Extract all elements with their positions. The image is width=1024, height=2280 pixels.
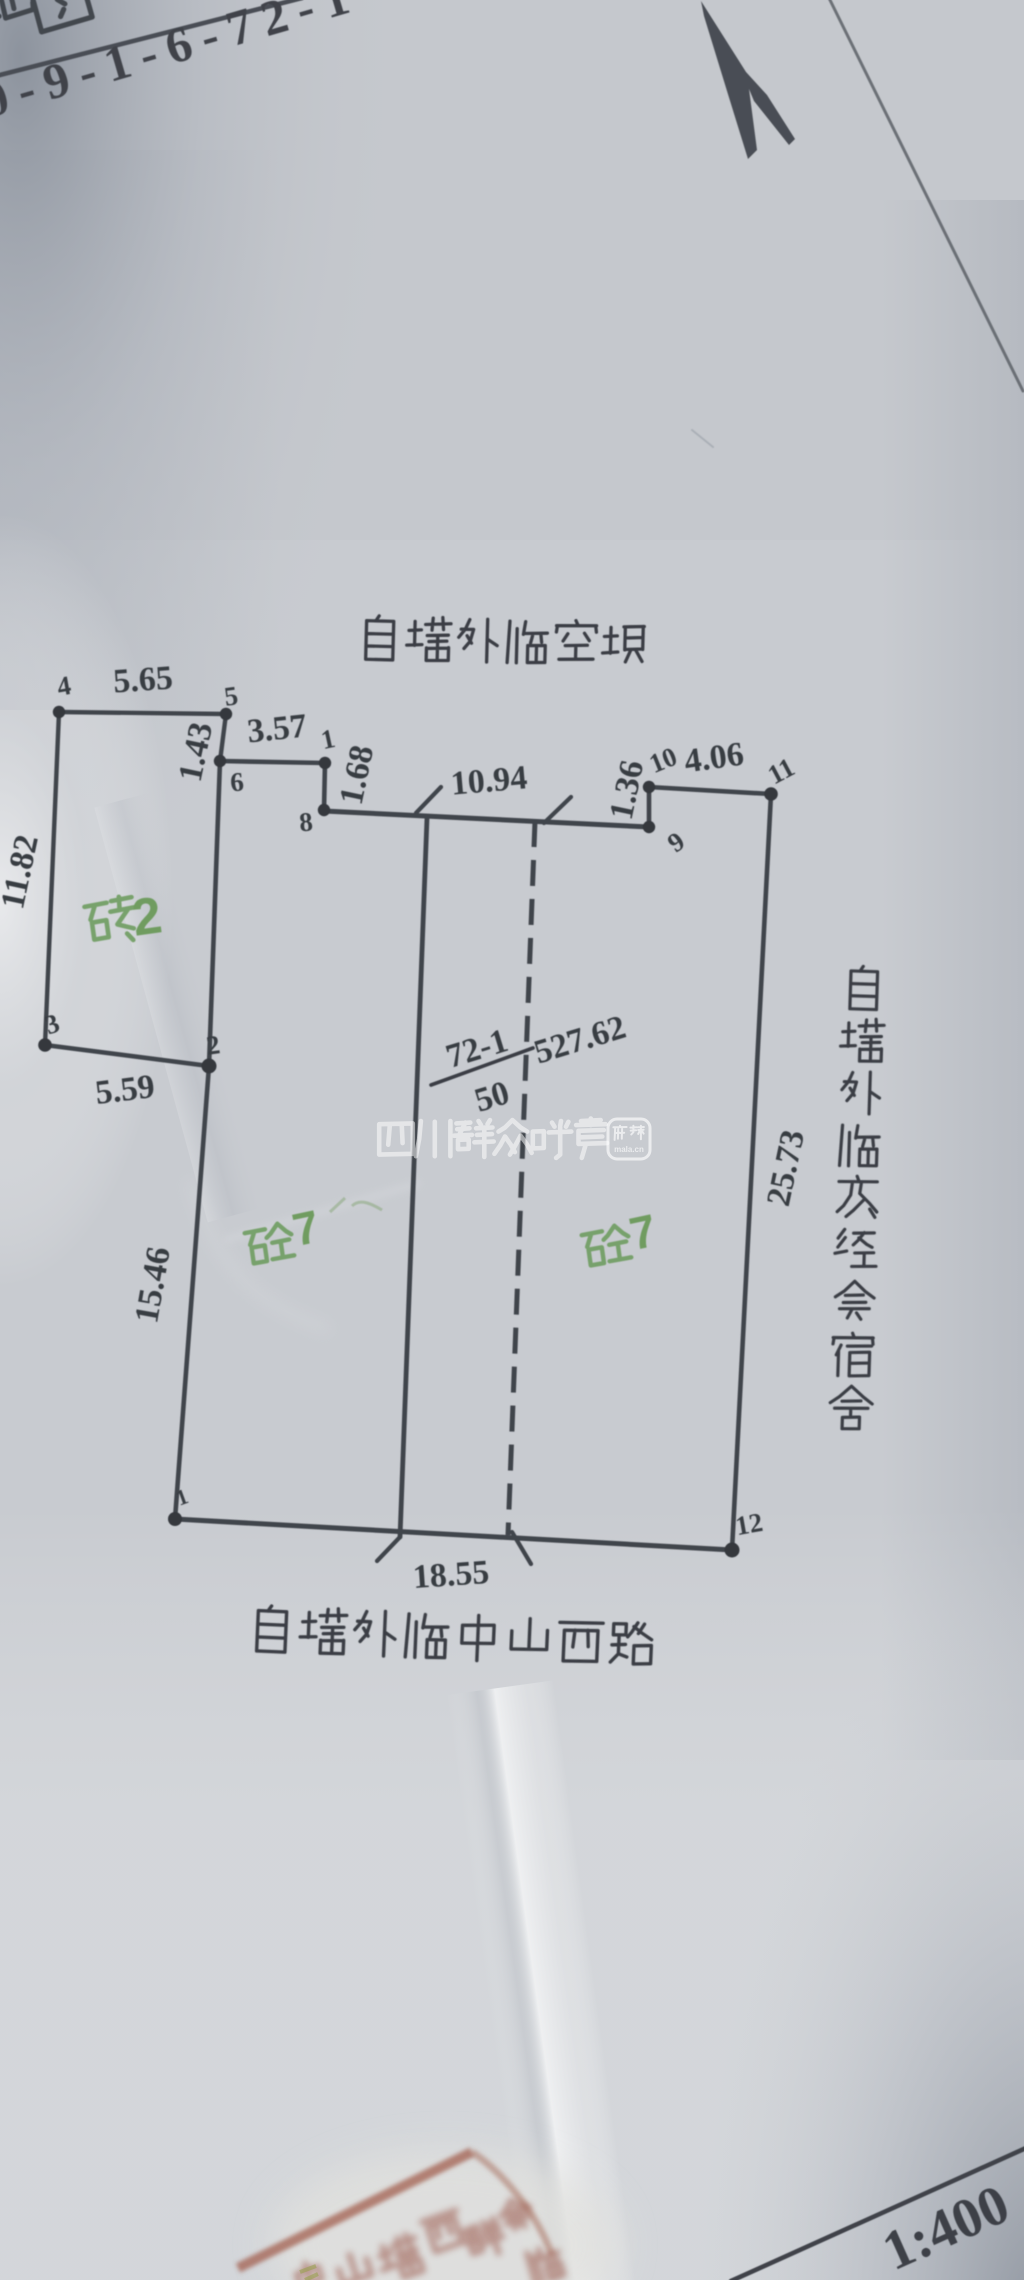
svg-text:mala.cn: mala.cn	[614, 1145, 644, 1154]
svg-text:6: 6	[229, 766, 245, 797]
svg-text:5.65: 5.65	[112, 659, 174, 700]
svg-text:3.57: 3.57	[245, 707, 308, 750]
svg-text:8: 8	[298, 806, 314, 837]
svg-text:18.55: 18.55	[412, 1554, 491, 1596]
svg-text:10.94: 10.94	[449, 759, 528, 803]
svg-text:5.59: 5.59	[93, 1068, 157, 1112]
svg-text:12: 12	[733, 1507, 765, 1541]
